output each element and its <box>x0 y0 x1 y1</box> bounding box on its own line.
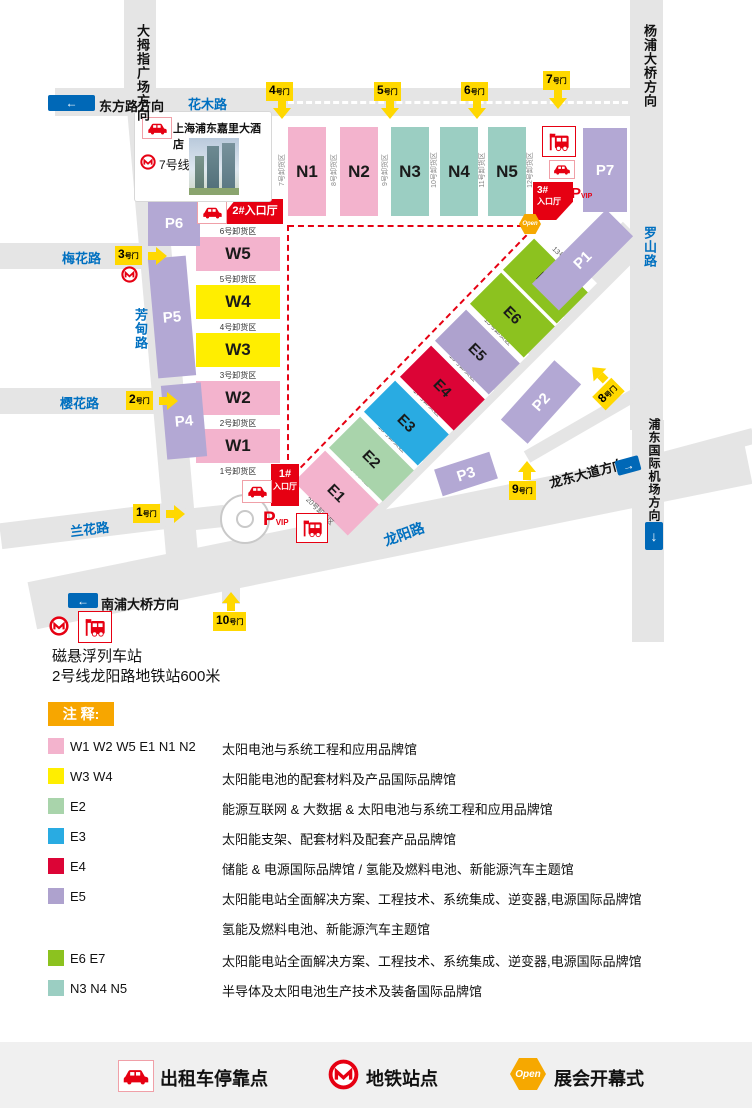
metro2-note: 2号线龙阳路地铁站600米 <box>52 665 220 686</box>
dock-strip-6: 6号卸货区 <box>196 227 280 237</box>
gate-9-num: 9 <box>512 482 519 496</box>
gate-1-num: 1 <box>136 505 143 519</box>
hall-e4-label: E4 <box>430 376 455 401</box>
gate-6-suffix: 号门 <box>471 89 485 96</box>
hall-e6-label: E6 <box>500 303 525 328</box>
hotel-photo-trees <box>189 188 239 195</box>
gate-9: 9号门 <box>509 481 536 500</box>
gate-10: 10号门 <box>213 612 246 631</box>
roundabout-center <box>236 510 254 528</box>
nanpu-sign: ← <box>68 593 98 608</box>
legend-codes-7: N3 N4 N5 <box>70 981 127 996</box>
open-label: Open <box>522 221 537 227</box>
footer-bar: 出租车停靠点 地铁站点 Open 展会开幕式 <box>0 1042 752 1108</box>
open-label: Open <box>515 1069 541 1080</box>
legend-desc-6: 太阳能电站全面解决方案、工程技术、系统集成、逆变器,电源国际品牌馆 <box>222 951 642 970</box>
left-arrow-icon: ← <box>77 594 89 608</box>
direction-pudong-airport: 浦东国际机场方向 <box>646 418 663 522</box>
road-label-yinghua: 樱花路 <box>60 393 99 412</box>
legend-codes-3: E3 <box>70 829 86 844</box>
legend-desc-3: 太阳能支架、配套材料及配套产品品牌馆 <box>222 829 456 848</box>
parking-p3-label: P3 <box>455 463 478 485</box>
entrance-hall-1-num: 1# <box>271 468 299 481</box>
dock-strip-3: 3号卸货区 <box>196 371 280 381</box>
gate-5-num: 5 <box>377 83 384 97</box>
hall-w5: W5 <box>196 237 280 271</box>
taxi-icon <box>202 206 223 219</box>
dock-strip-11: 11号卸货区 <box>478 130 488 210</box>
entrance-hall-1: 1# 入口厅 <box>271 464 299 506</box>
dock-strip-4: 4号卸货区 <box>196 323 280 333</box>
bus-icon <box>83 616 107 639</box>
road-label-fangdian: 芳甸路 <box>131 308 150 350</box>
gate-6-num: 6 <box>464 83 471 97</box>
gate-2-arrow <box>159 392 178 410</box>
hall-n2-label: N2 <box>348 162 370 182</box>
road-label-luoshan: 罗山路 <box>640 226 659 268</box>
footer-taxi-label: 出租车停靠点 <box>160 1065 268 1091</box>
taxi-stand-entrance2 <box>197 201 227 224</box>
down-arrow-icon: ↓ <box>651 528 658 544</box>
hotel-photo-tower-left <box>195 156 204 190</box>
entrance-hall-1-label: 入口厅 <box>271 481 299 492</box>
vip-sub: VIP <box>581 193 592 200</box>
entrance-hall-3-label: 入口厅 <box>537 197 573 207</box>
hotel-photo-tower-mid <box>207 146 219 190</box>
taxi-icon <box>122 1068 150 1085</box>
bus-station-top <box>542 126 576 157</box>
legend-codes-6: E6 E7 <box>70 951 105 966</box>
footer-metro-label: 地铁站点 <box>366 1065 438 1091</box>
bus-icon <box>547 131 571 153</box>
hall-w2: W2 <box>196 381 280 415</box>
gate-7-arrow <box>549 90 567 109</box>
hotel-photo <box>189 138 239 195</box>
direction-nanpu: 南浦大桥方向 <box>101 594 179 613</box>
parking-p1-label: P1 <box>570 248 595 273</box>
gate-1-suffix: 号门 <box>143 511 157 518</box>
hall-w3-label: W3 <box>225 340 251 360</box>
gate-10-arrow <box>222 592 240 611</box>
hall-n3: N3 <box>391 127 429 216</box>
dock-strip-10: 10号卸货区 <box>430 130 440 210</box>
legend-desc-0: 太阳电池与系统工程和应用品牌馆 <box>222 739 417 758</box>
hall-n3-label: N3 <box>399 162 421 182</box>
parking-p6-label: P6 <box>165 215 183 232</box>
bus-station-bottom <box>296 513 328 543</box>
expo-map-page: N1 N2 N3 N4 N5 7号卸货区 8号卸货区 9号卸货区 10号卸货区 … <box>0 0 752 1108</box>
legend-desc-4: 储能 & 电源国际品牌馆 / 氢能及燃料电池、新能源汽车主题馆 <box>222 859 574 878</box>
gate-6: 6号门 <box>461 82 488 101</box>
legend-desc-5b: 氢能及燃料电池、新能源汽车主题馆 <box>222 919 430 938</box>
gate-7-num: 7 <box>546 72 553 86</box>
direction-yangpu: 杨浦大桥方向 <box>640 24 659 108</box>
direction-dongfang: 东方路方向 <box>99 96 164 115</box>
parking-p5-label: P5 <box>162 308 182 327</box>
hall-e2-label: E2 <box>359 447 384 472</box>
road-huamu-lane-dashes <box>288 101 628 104</box>
maglev-note: 磁悬浮列车站 <box>52 645 142 666</box>
metro-icon-footer <box>328 1059 359 1090</box>
vip-p: P <box>263 509 276 530</box>
legend-desc-1: 太阳能电池的配套材料及产品国际品牌馆 <box>222 769 456 788</box>
taxi-icon <box>247 485 268 498</box>
legend-swatch-pink <box>48 738 64 754</box>
gate-2-num: 2 <box>129 392 136 406</box>
dock-strip-8: 8号卸货区 <box>330 130 340 210</box>
gate-7: 7号门 <box>543 71 570 90</box>
gate-3-suffix: 号门 <box>125 253 139 260</box>
entrance-hall-2: 2#入口厅 <box>227 199 283 224</box>
pudong-airport-arrow-sign: ↓ <box>645 522 663 550</box>
legend-codes-5: E5 <box>70 889 86 904</box>
parking-p7-label: P7 <box>596 162 614 179</box>
hall-n4: N4 <box>440 127 478 216</box>
gate-2-suffix: 号门 <box>136 398 150 405</box>
dock-strip-2: 2号卸货区 <box>196 419 280 429</box>
hall-w5-label: W5 <box>225 244 251 264</box>
gate-5: 5号门 <box>374 82 401 101</box>
legend-swatch-n345 <box>48 980 64 996</box>
vip-sub: VIP <box>276 518 289 527</box>
taxi-stand-top <box>549 160 575 179</box>
taxi-icon <box>147 122 168 135</box>
gate-9-suffix: 号门 <box>519 488 533 495</box>
metro-icon-line7 <box>140 154 156 170</box>
hall-e5-label: E5 <box>465 340 490 365</box>
gate-1: 1号门 <box>133 504 160 523</box>
hotel-photo-tower-right <box>222 143 235 190</box>
footer-open-label: 展会开幕式 <box>554 1065 644 1091</box>
gate-9-arrow <box>518 461 536 480</box>
vip-parking-top: PVIP <box>571 186 592 201</box>
metro-line7-label: 7号线 <box>159 156 190 173</box>
legend-swatch-e2 <box>48 798 64 814</box>
legend-desc-7: 半导体及太阳电池生产技术及装备国际品牌馆 <box>222 981 482 1000</box>
road-label-lanhua: 兰花路 <box>69 517 110 541</box>
gate-6-arrow <box>468 100 486 119</box>
gate-8-suffix: 号门 <box>604 385 619 400</box>
gate-1-arrow <box>166 505 185 523</box>
expo-boundary-dash-left <box>287 225 289 470</box>
gate-5-arrow <box>381 100 399 119</box>
open-icon-footer: Open <box>510 1058 546 1090</box>
road-label-meihua: 梅花路 <box>62 248 101 267</box>
legend-codes-1: W3 W4 <box>70 769 113 784</box>
entrance-hall-3-num: 3# <box>537 185 573 197</box>
bus-icon <box>301 518 324 539</box>
hall-n2: N2 <box>340 127 378 216</box>
gate-4-suffix: 号门 <box>276 89 290 96</box>
hall-w1: W1 <box>196 429 280 463</box>
vip-p: P <box>571 185 581 202</box>
legend-swatch-yellow <box>48 768 64 784</box>
gate-10-num: 10 <box>216 613 229 627</box>
dock-strip-9: 9号卸货区 <box>381 130 391 210</box>
hall-e1-label: E1 <box>324 481 349 506</box>
dock-strip-7: 7号卸货区 <box>278 130 288 210</box>
hall-w4: W4 <box>196 285 280 319</box>
legend-codes-0: W1 W2 W5 E1 N1 N2 <box>70 739 196 754</box>
gate-2: 2号门 <box>126 391 153 410</box>
legend-title: 注 释: <box>48 702 114 726</box>
legend-swatch-e4 <box>48 858 64 874</box>
hall-n1-label: N1 <box>296 162 318 182</box>
expo-boundary-dash-top <box>288 225 533 227</box>
metro-icon-gate3 <box>121 266 138 283</box>
parking-p4-label: P4 <box>174 412 194 431</box>
hall-w3: W3 <box>196 333 280 367</box>
hall-n5-label: N5 <box>496 162 518 182</box>
metro-icon-maglev <box>49 616 69 636</box>
gate-4-num: 4 <box>269 83 276 97</box>
left-arrow-icon: ← <box>66 96 78 110</box>
road-label-huamu: 花木路 <box>188 94 227 113</box>
hall-e3-label: E3 <box>394 411 419 436</box>
gate-3: 3号门 <box>115 246 142 265</box>
gate-4: 4号门 <box>266 82 293 101</box>
legend-codes-2: E2 <box>70 799 86 814</box>
dock-strip-1: 1号卸货区 <box>196 467 280 477</box>
parking-p6: P6 <box>148 200 200 246</box>
footer-taxi-iconbox <box>118 1060 154 1092</box>
vip-parking-bottom: PVIP <box>263 510 289 529</box>
hotel-card: 上海浦东嘉里大酒店 7号线 <box>134 111 272 202</box>
gate-10-suffix: 号门 <box>229 619 243 626</box>
legend-swatch-e5 <box>48 888 64 904</box>
hall-w4-label: W4 <box>225 292 251 312</box>
gate-4-arrow <box>273 100 291 119</box>
legend-desc-5: 太阳能电站全面解决方案、工程技术、系统集成、逆变器,电源国际品牌馆 <box>222 889 642 908</box>
dongfang-sign: ← <box>48 95 95 111</box>
legend-desc-2: 能源互联网 & 大数据 & 太阳电池与系统工程和应用品牌馆 <box>222 799 553 818</box>
entrance-hall-3: 3# 入口厅 <box>533 182 573 220</box>
legend-swatch-e6e7 <box>48 950 64 966</box>
hall-w2-label: W2 <box>225 388 251 408</box>
gate-3-arrow <box>148 247 167 265</box>
taxi-stand-entrance1 <box>242 480 272 503</box>
taxi-icon <box>553 164 571 175</box>
bus-station-maglev <box>78 611 112 643</box>
direction-damuzhi: 大拇指广场方向 <box>133 24 152 122</box>
dock-strip-5: 5号卸货区 <box>196 275 280 285</box>
hall-n5: N5 <box>488 127 526 216</box>
legend-swatch-e3 <box>48 828 64 844</box>
hall-w1-label: W1 <box>225 436 251 456</box>
parking-p2-label: P2 <box>529 389 554 414</box>
right-arrow-icon: → <box>620 457 635 474</box>
hall-n1: N1 <box>288 127 326 216</box>
gate-3-num: 3 <box>118 247 125 261</box>
legend-codes-4: E4 <box>70 859 86 874</box>
gate-5-suffix: 号门 <box>384 89 398 96</box>
hall-n4-label: N4 <box>448 162 470 182</box>
gate-7-suffix: 号门 <box>553 78 567 85</box>
